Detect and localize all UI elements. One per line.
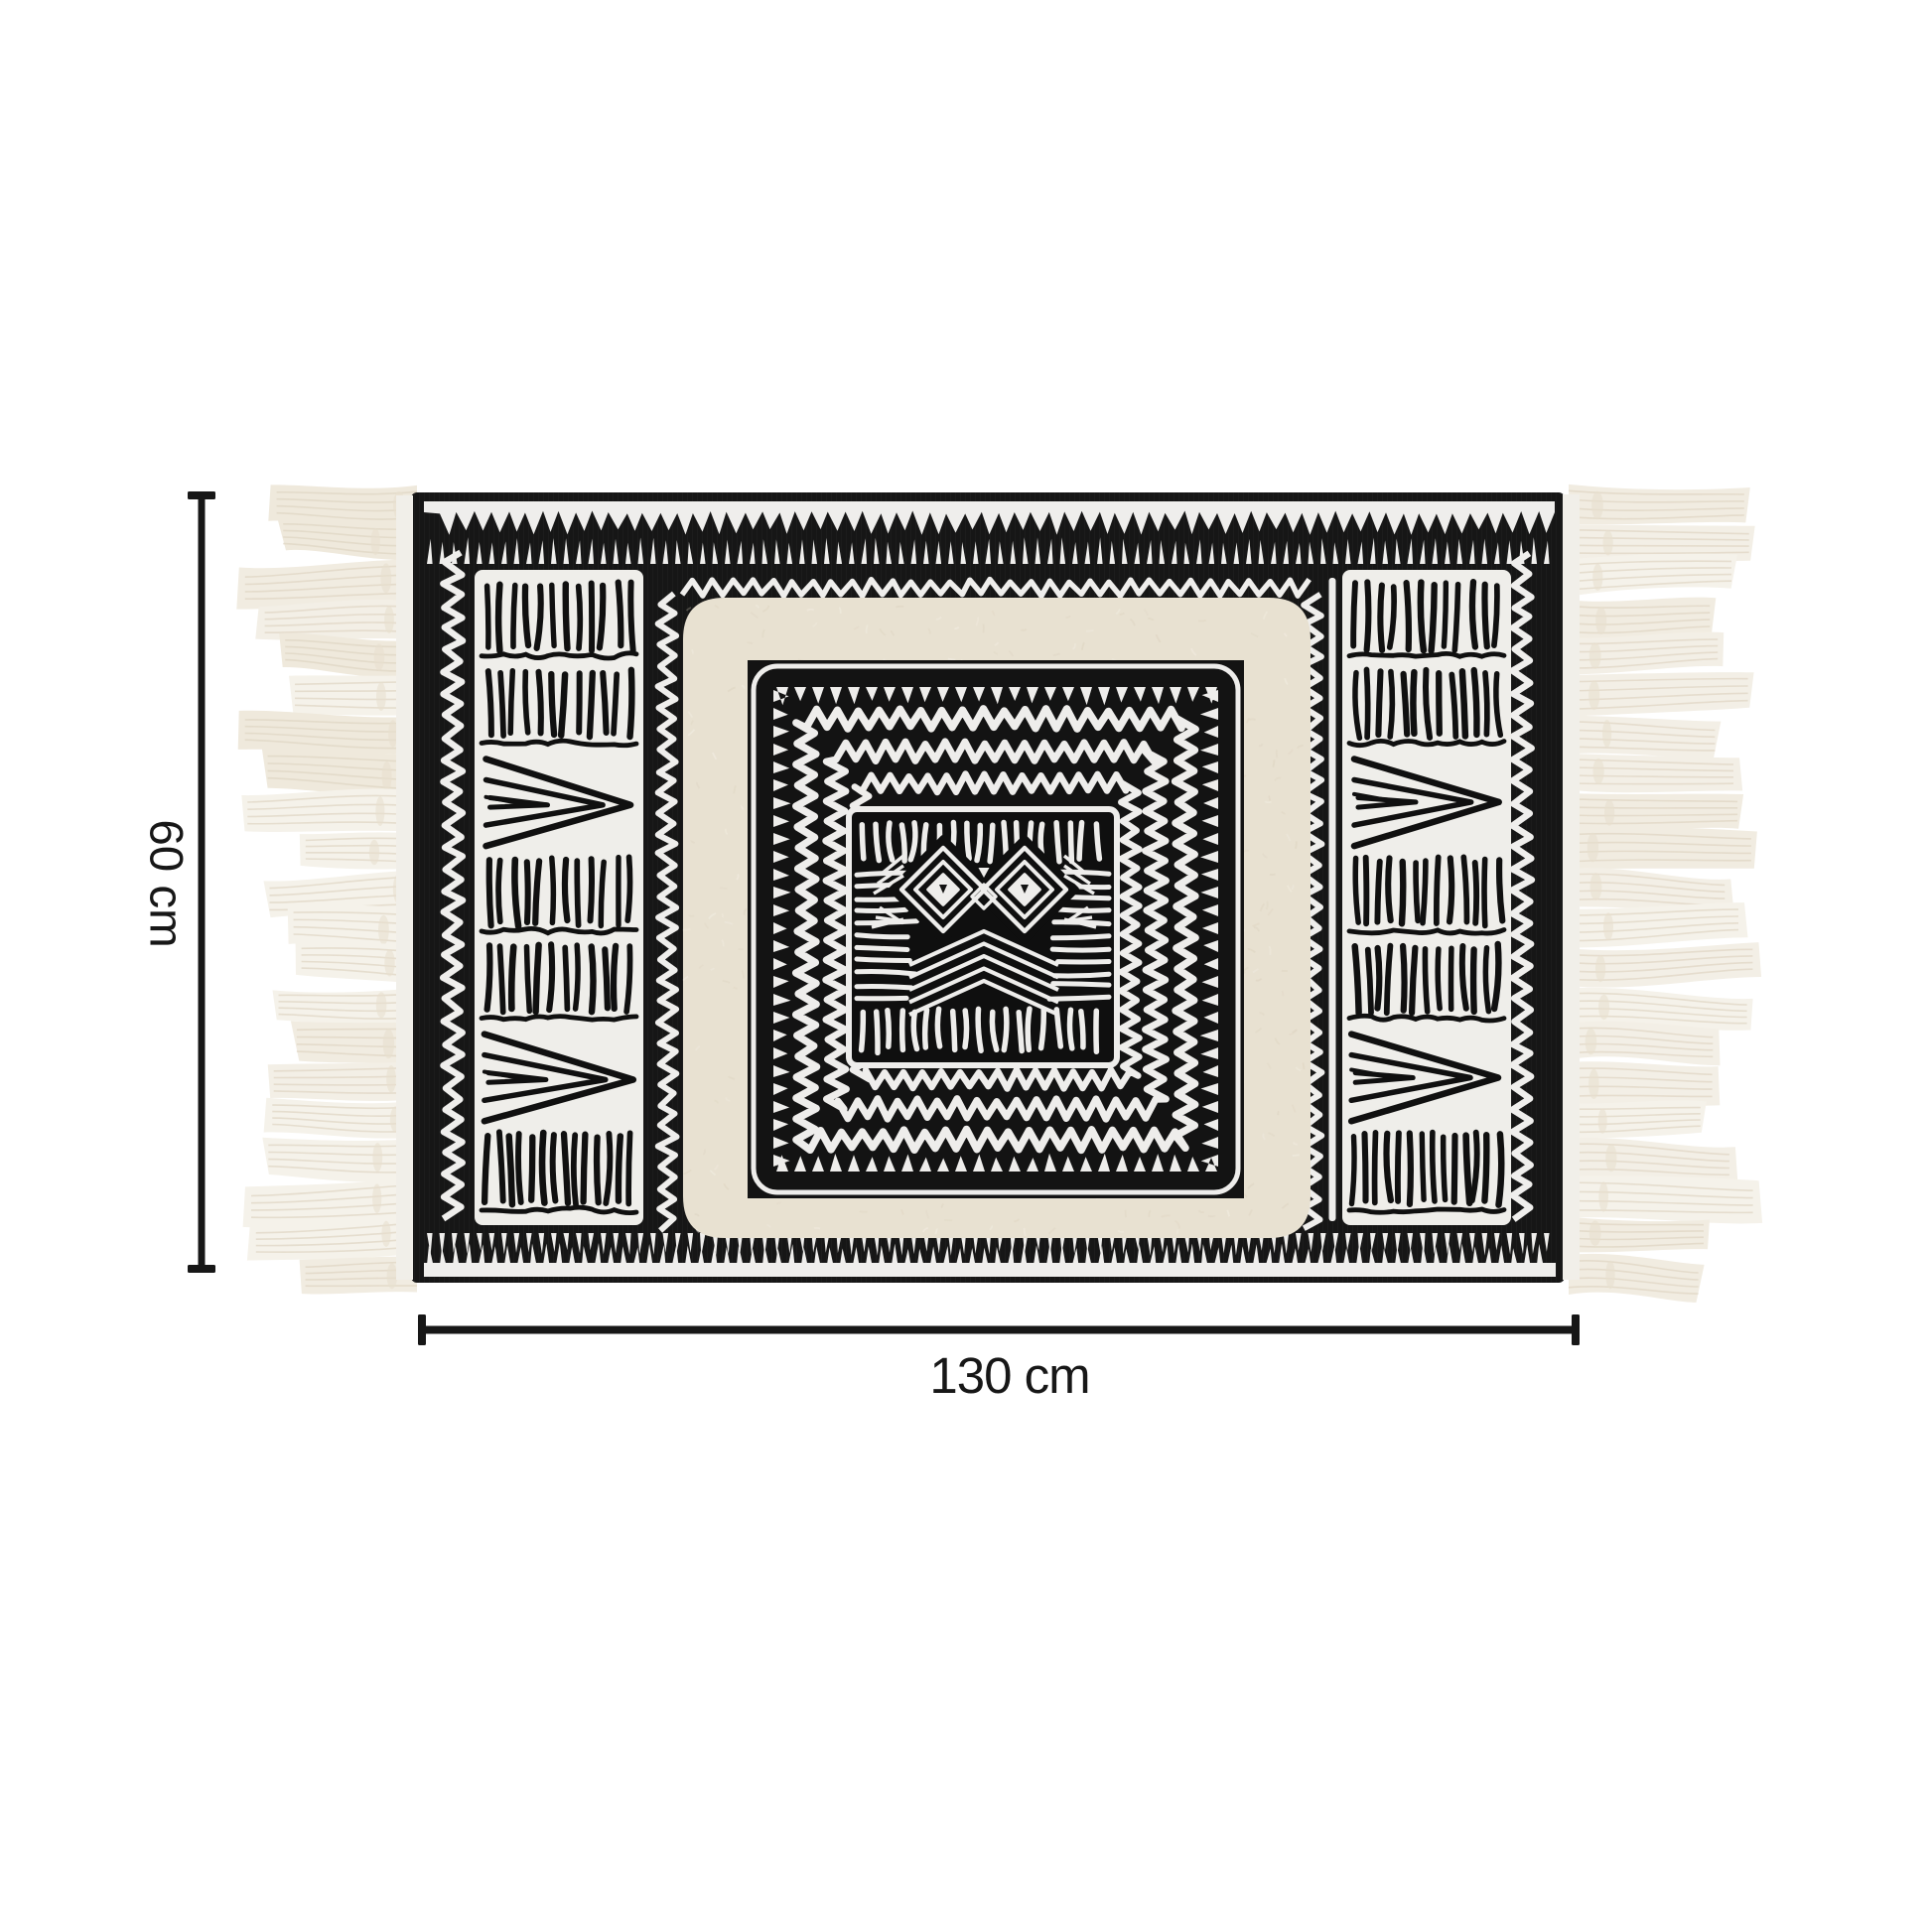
svg-text:130 cm: 130 cm (929, 1347, 1089, 1404)
svg-text:60 cm: 60 cm (139, 819, 192, 947)
